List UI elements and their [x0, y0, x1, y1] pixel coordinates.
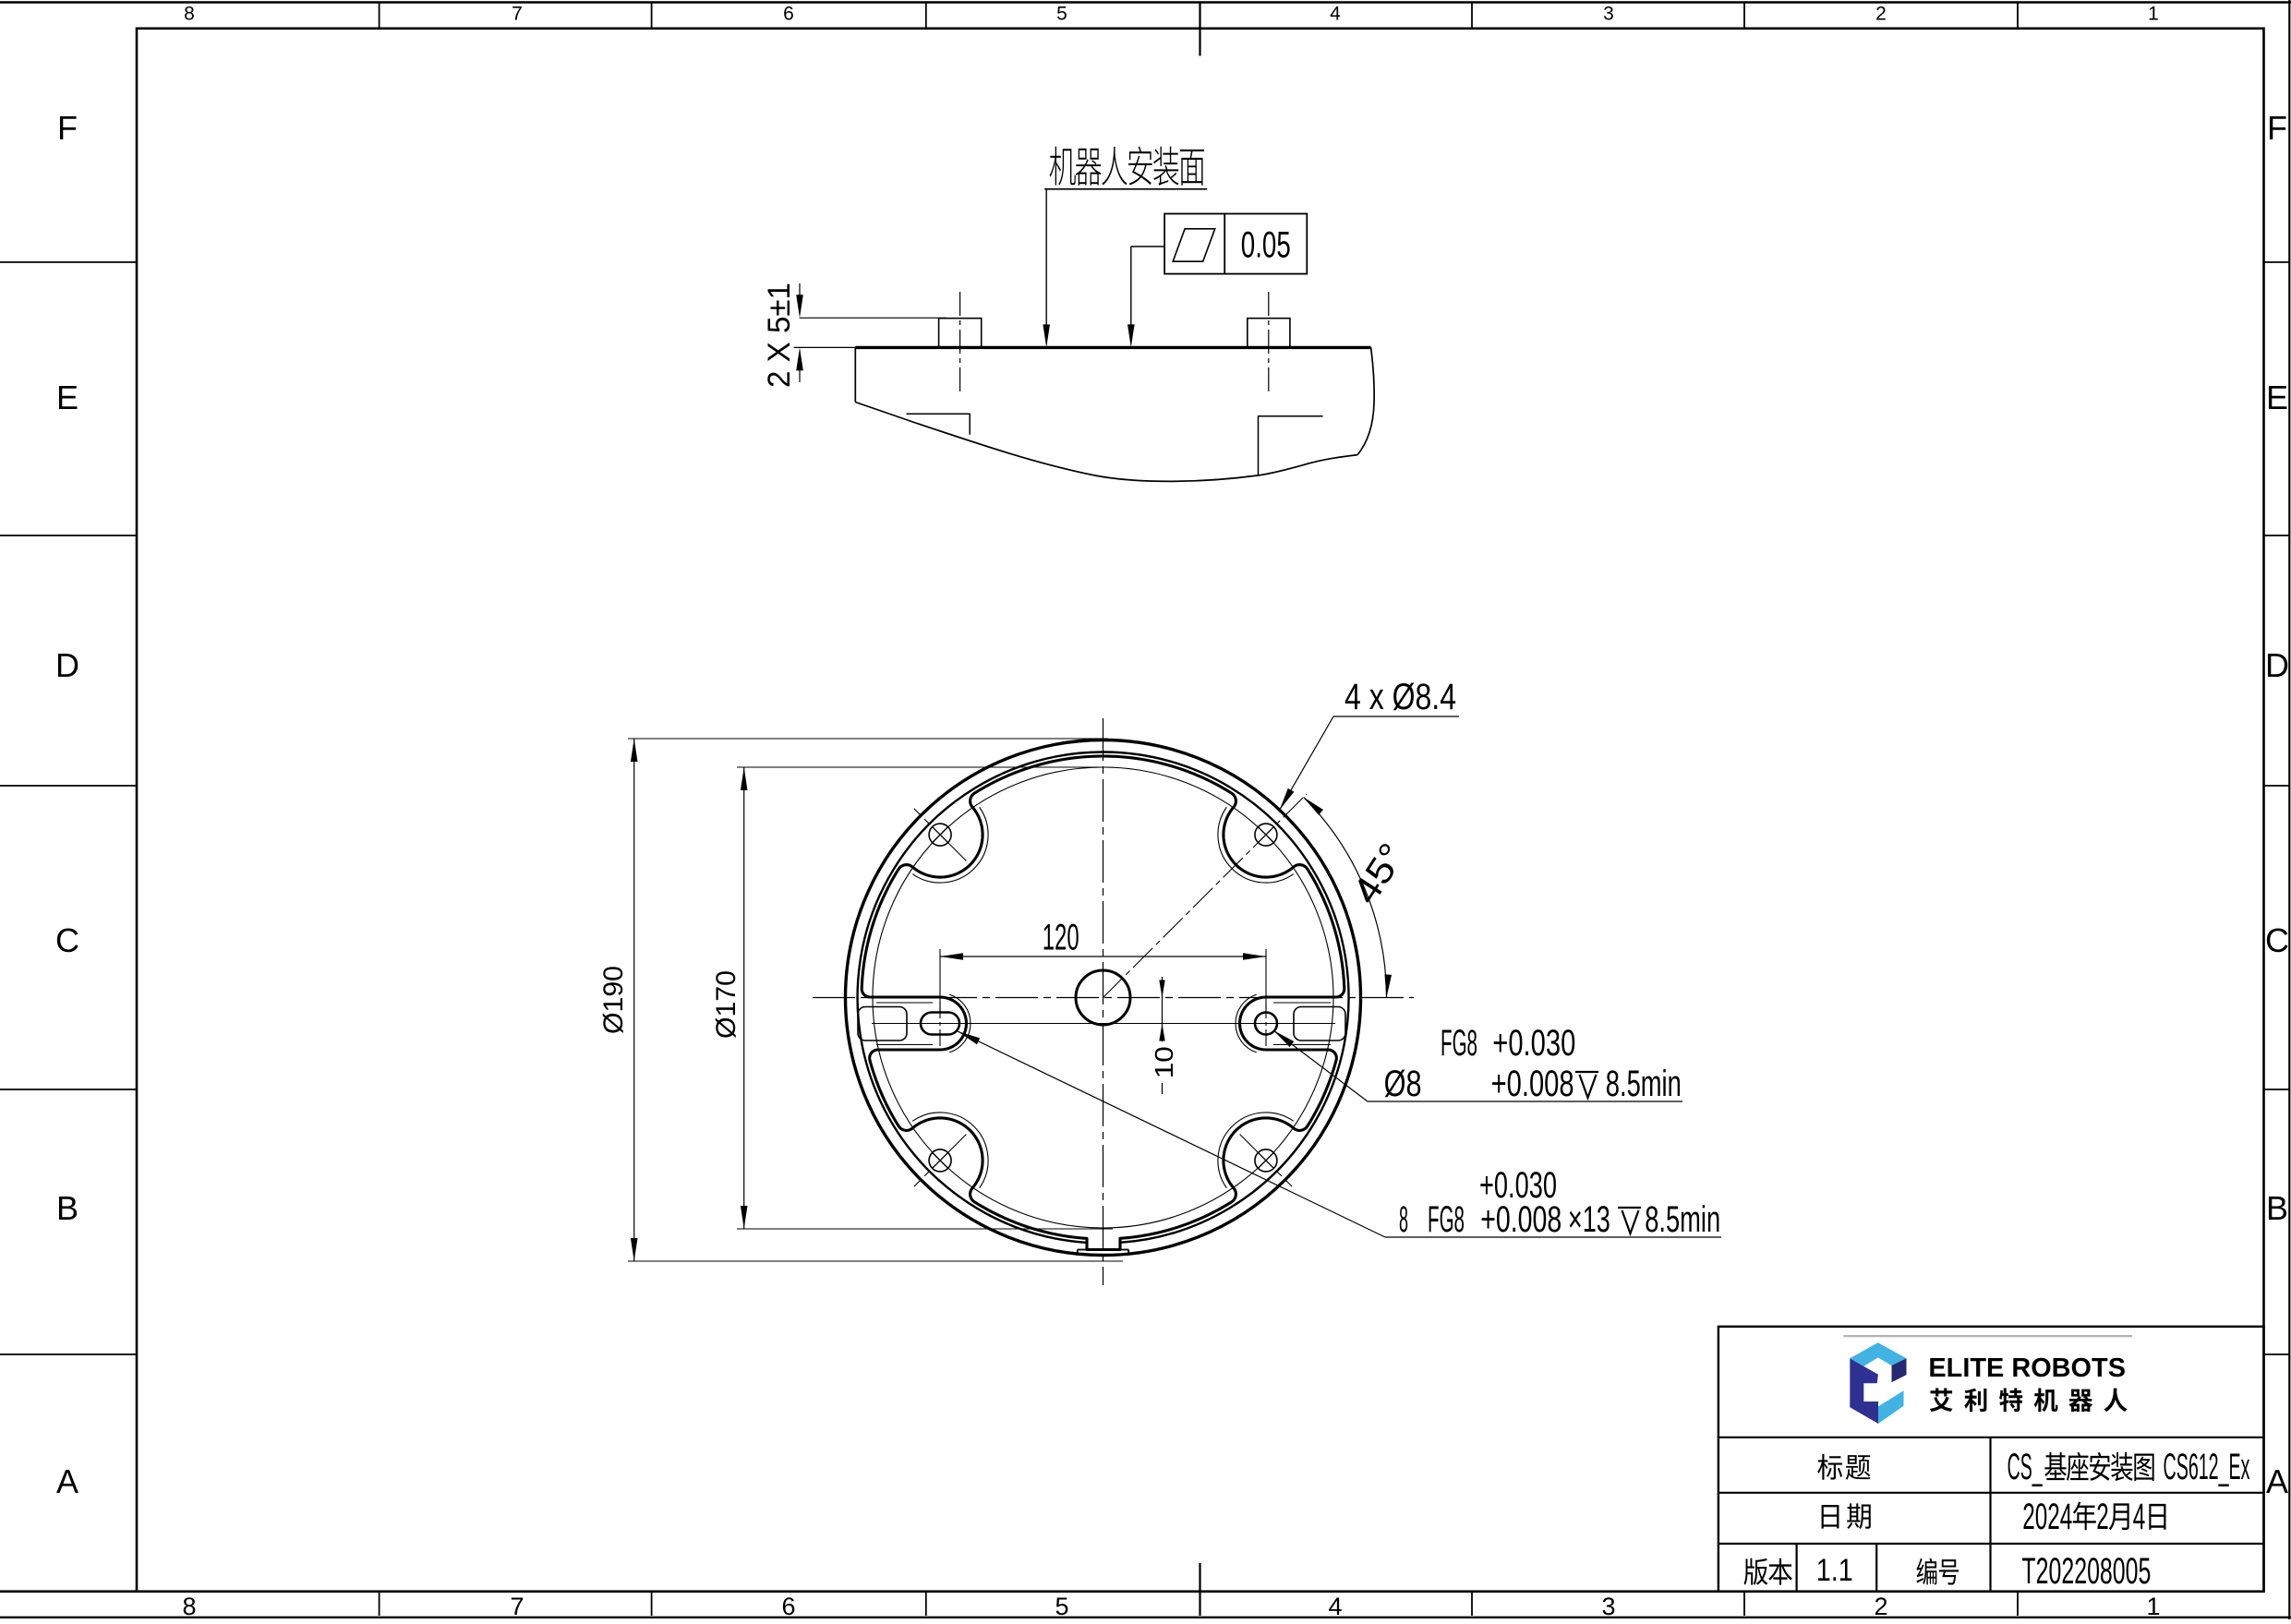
svg-text:2024: 2024	[2022, 1497, 2072, 1537]
svg-text:ELITE ROBOTS: ELITE ROBOTS	[1928, 1353, 2126, 1383]
svg-text:FG8: FG8	[1441, 1023, 1477, 1064]
svg-text:F: F	[57, 109, 78, 147]
svg-text:3: 3	[1601, 1593, 1615, 1619]
svg-text:4 x Ø8.4: 4 x Ø8.4	[1344, 677, 1456, 717]
svg-text:1.1: 1.1	[1816, 1553, 1853, 1588]
svg-text:T202208005: T202208005	[2021, 1551, 2151, 1592]
svg-text:Ø190: Ø190	[598, 966, 629, 1034]
svg-text:B: B	[2266, 1189, 2288, 1227]
svg-text:2: 2	[2096, 1497, 2109, 1537]
svg-text:C: C	[55, 921, 79, 959]
svg-text:A: A	[56, 1462, 78, 1500]
svg-text:D: D	[2265, 646, 2289, 684]
svg-text:5: 5	[1056, 4, 1067, 25]
svg-text:6: 6	[781, 1593, 795, 1619]
svg-text:8: 8	[184, 4, 195, 25]
svg-text:×13: ×13	[1568, 1199, 1610, 1240]
svg-text:FG8: FG8	[1428, 1199, 1465, 1240]
svg-text:120: 120	[1043, 917, 1079, 957]
svg-text:2: 2	[1875, 4, 1887, 25]
svg-text:10: 10	[1150, 1046, 1178, 1078]
svg-text:CS_: CS_	[2008, 1447, 2043, 1487]
svg-text:7: 7	[510, 1593, 524, 1619]
svg-text:0.05: 0.05	[1241, 225, 1291, 266]
svg-text:CS612_Ex: CS612_Ex	[2164, 1447, 2250, 1487]
svg-text:+0.030: +0.030	[1492, 1023, 1575, 1064]
svg-text:8.5min: 8.5min	[1606, 1064, 1682, 1104]
svg-text:B: B	[56, 1189, 78, 1227]
svg-text:6: 6	[783, 4, 794, 25]
svg-text:Ø170: Ø170	[711, 970, 742, 1039]
svg-text:5: 5	[1055, 1593, 1068, 1619]
svg-text:8.5min: 8.5min	[1645, 1199, 1720, 1240]
svg-text:4: 4	[1328, 1593, 1342, 1619]
svg-text:E: E	[2266, 379, 2288, 416]
svg-text:2 X 5±1: 2 X 5±1	[762, 283, 797, 388]
svg-text:F: F	[2267, 109, 2287, 147]
svg-text:4: 4	[2133, 1497, 2146, 1537]
svg-text:4: 4	[1330, 4, 1341, 25]
svg-text:3: 3	[1603, 4, 1614, 25]
svg-text:2: 2	[1874, 1593, 1887, 1619]
svg-text:D: D	[55, 646, 79, 684]
svg-text:1: 1	[2148, 4, 2159, 25]
svg-text:Ø8: Ø8	[1384, 1064, 1422, 1104]
svg-text:+0.008: +0.008	[1491, 1064, 1574, 1104]
svg-text:C: C	[2265, 921, 2289, 959]
svg-text:+0.008: +0.008	[1480, 1199, 1561, 1240]
svg-text:7: 7	[512, 4, 523, 25]
svg-text:A: A	[2266, 1462, 2288, 1500]
svg-text:8: 8	[182, 1593, 196, 1619]
svg-text:8: 8	[1399, 1199, 1408, 1240]
svg-text:E: E	[56, 379, 78, 416]
svg-text:1: 1	[2146, 1593, 2160, 1619]
